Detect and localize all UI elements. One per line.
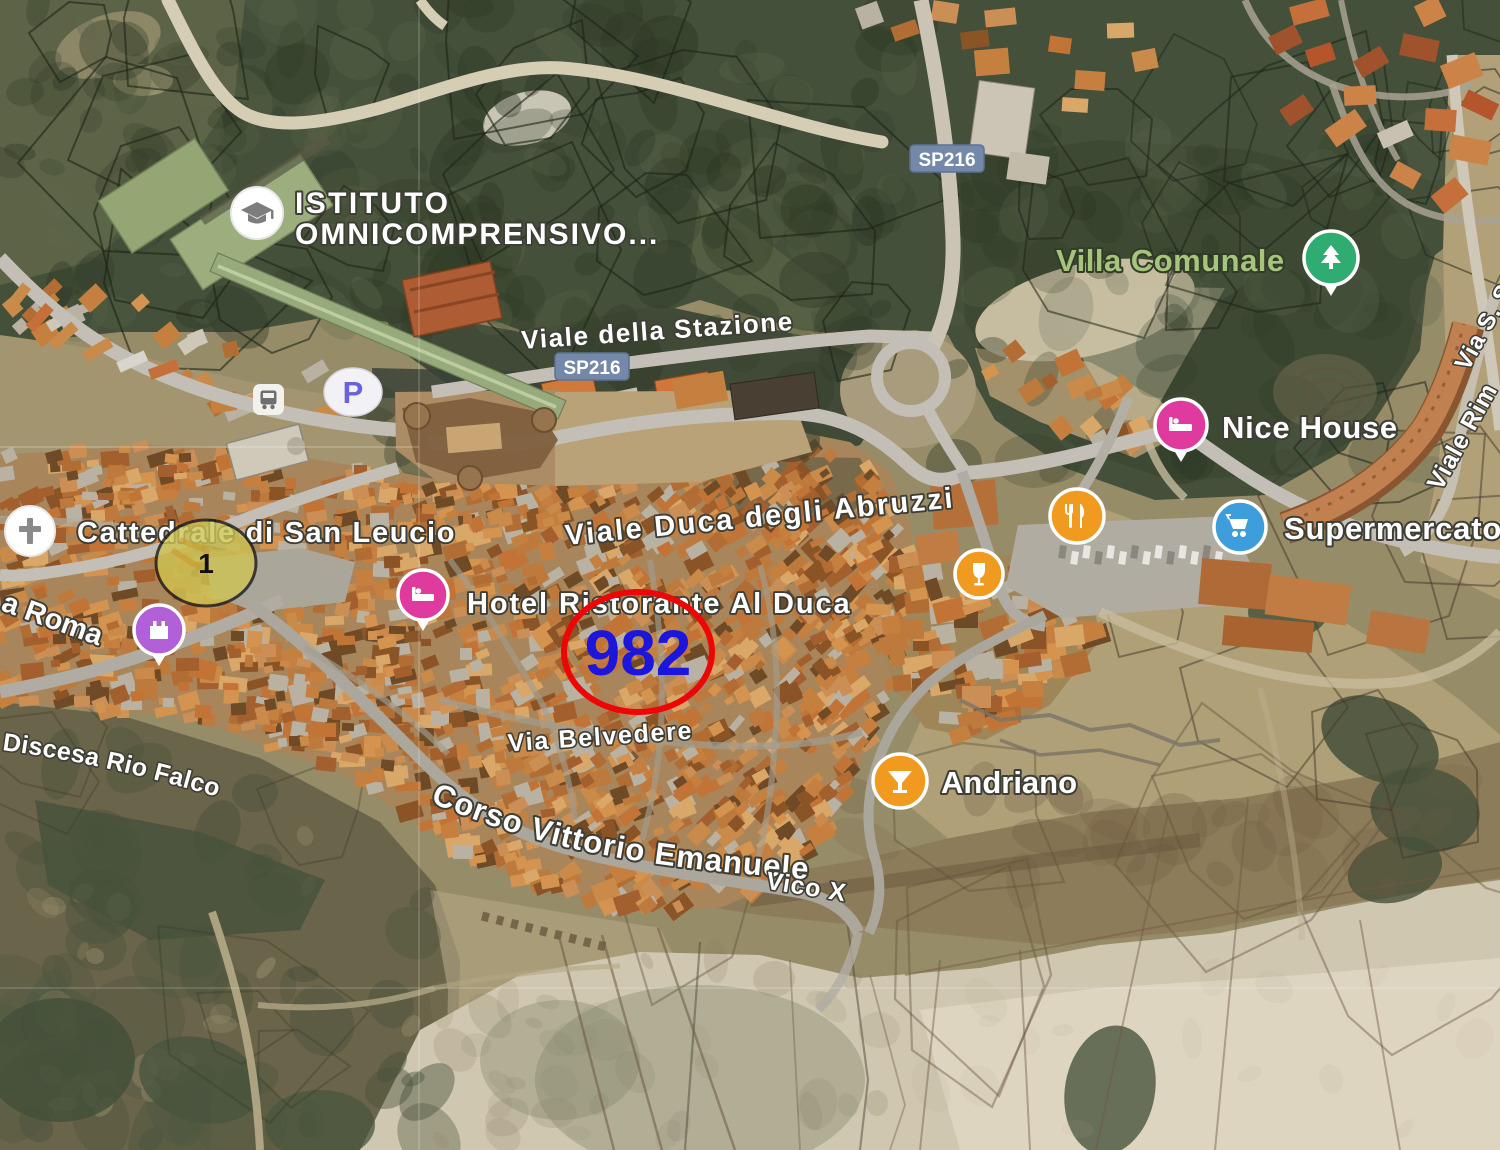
- svg-text:OMNICOMPRENSIVO...: OMNICOMPRENSIVO...: [295, 218, 659, 251]
- svg-text:SP216: SP216: [918, 150, 975, 171]
- svg-text:ISTITUTO: ISTITUTO: [295, 187, 450, 220]
- svg-text:982: 982: [585, 617, 692, 689]
- svg-text:Supermercato: Supermercato: [1284, 511, 1500, 546]
- svg-text:1: 1: [198, 548, 214, 579]
- svg-text:Nice House: Nice House: [1222, 410, 1398, 445]
- svg-text:Villa Comunale: Villa Comunale: [1056, 243, 1285, 278]
- svg-text:SP216: SP216: [563, 358, 620, 379]
- svg-text:P: P: [343, 375, 364, 410]
- svg-text:Cattedrale di San Leucio: Cattedrale di San Leucio: [77, 517, 456, 549]
- svg-text:Andriano: Andriano: [941, 765, 1077, 800]
